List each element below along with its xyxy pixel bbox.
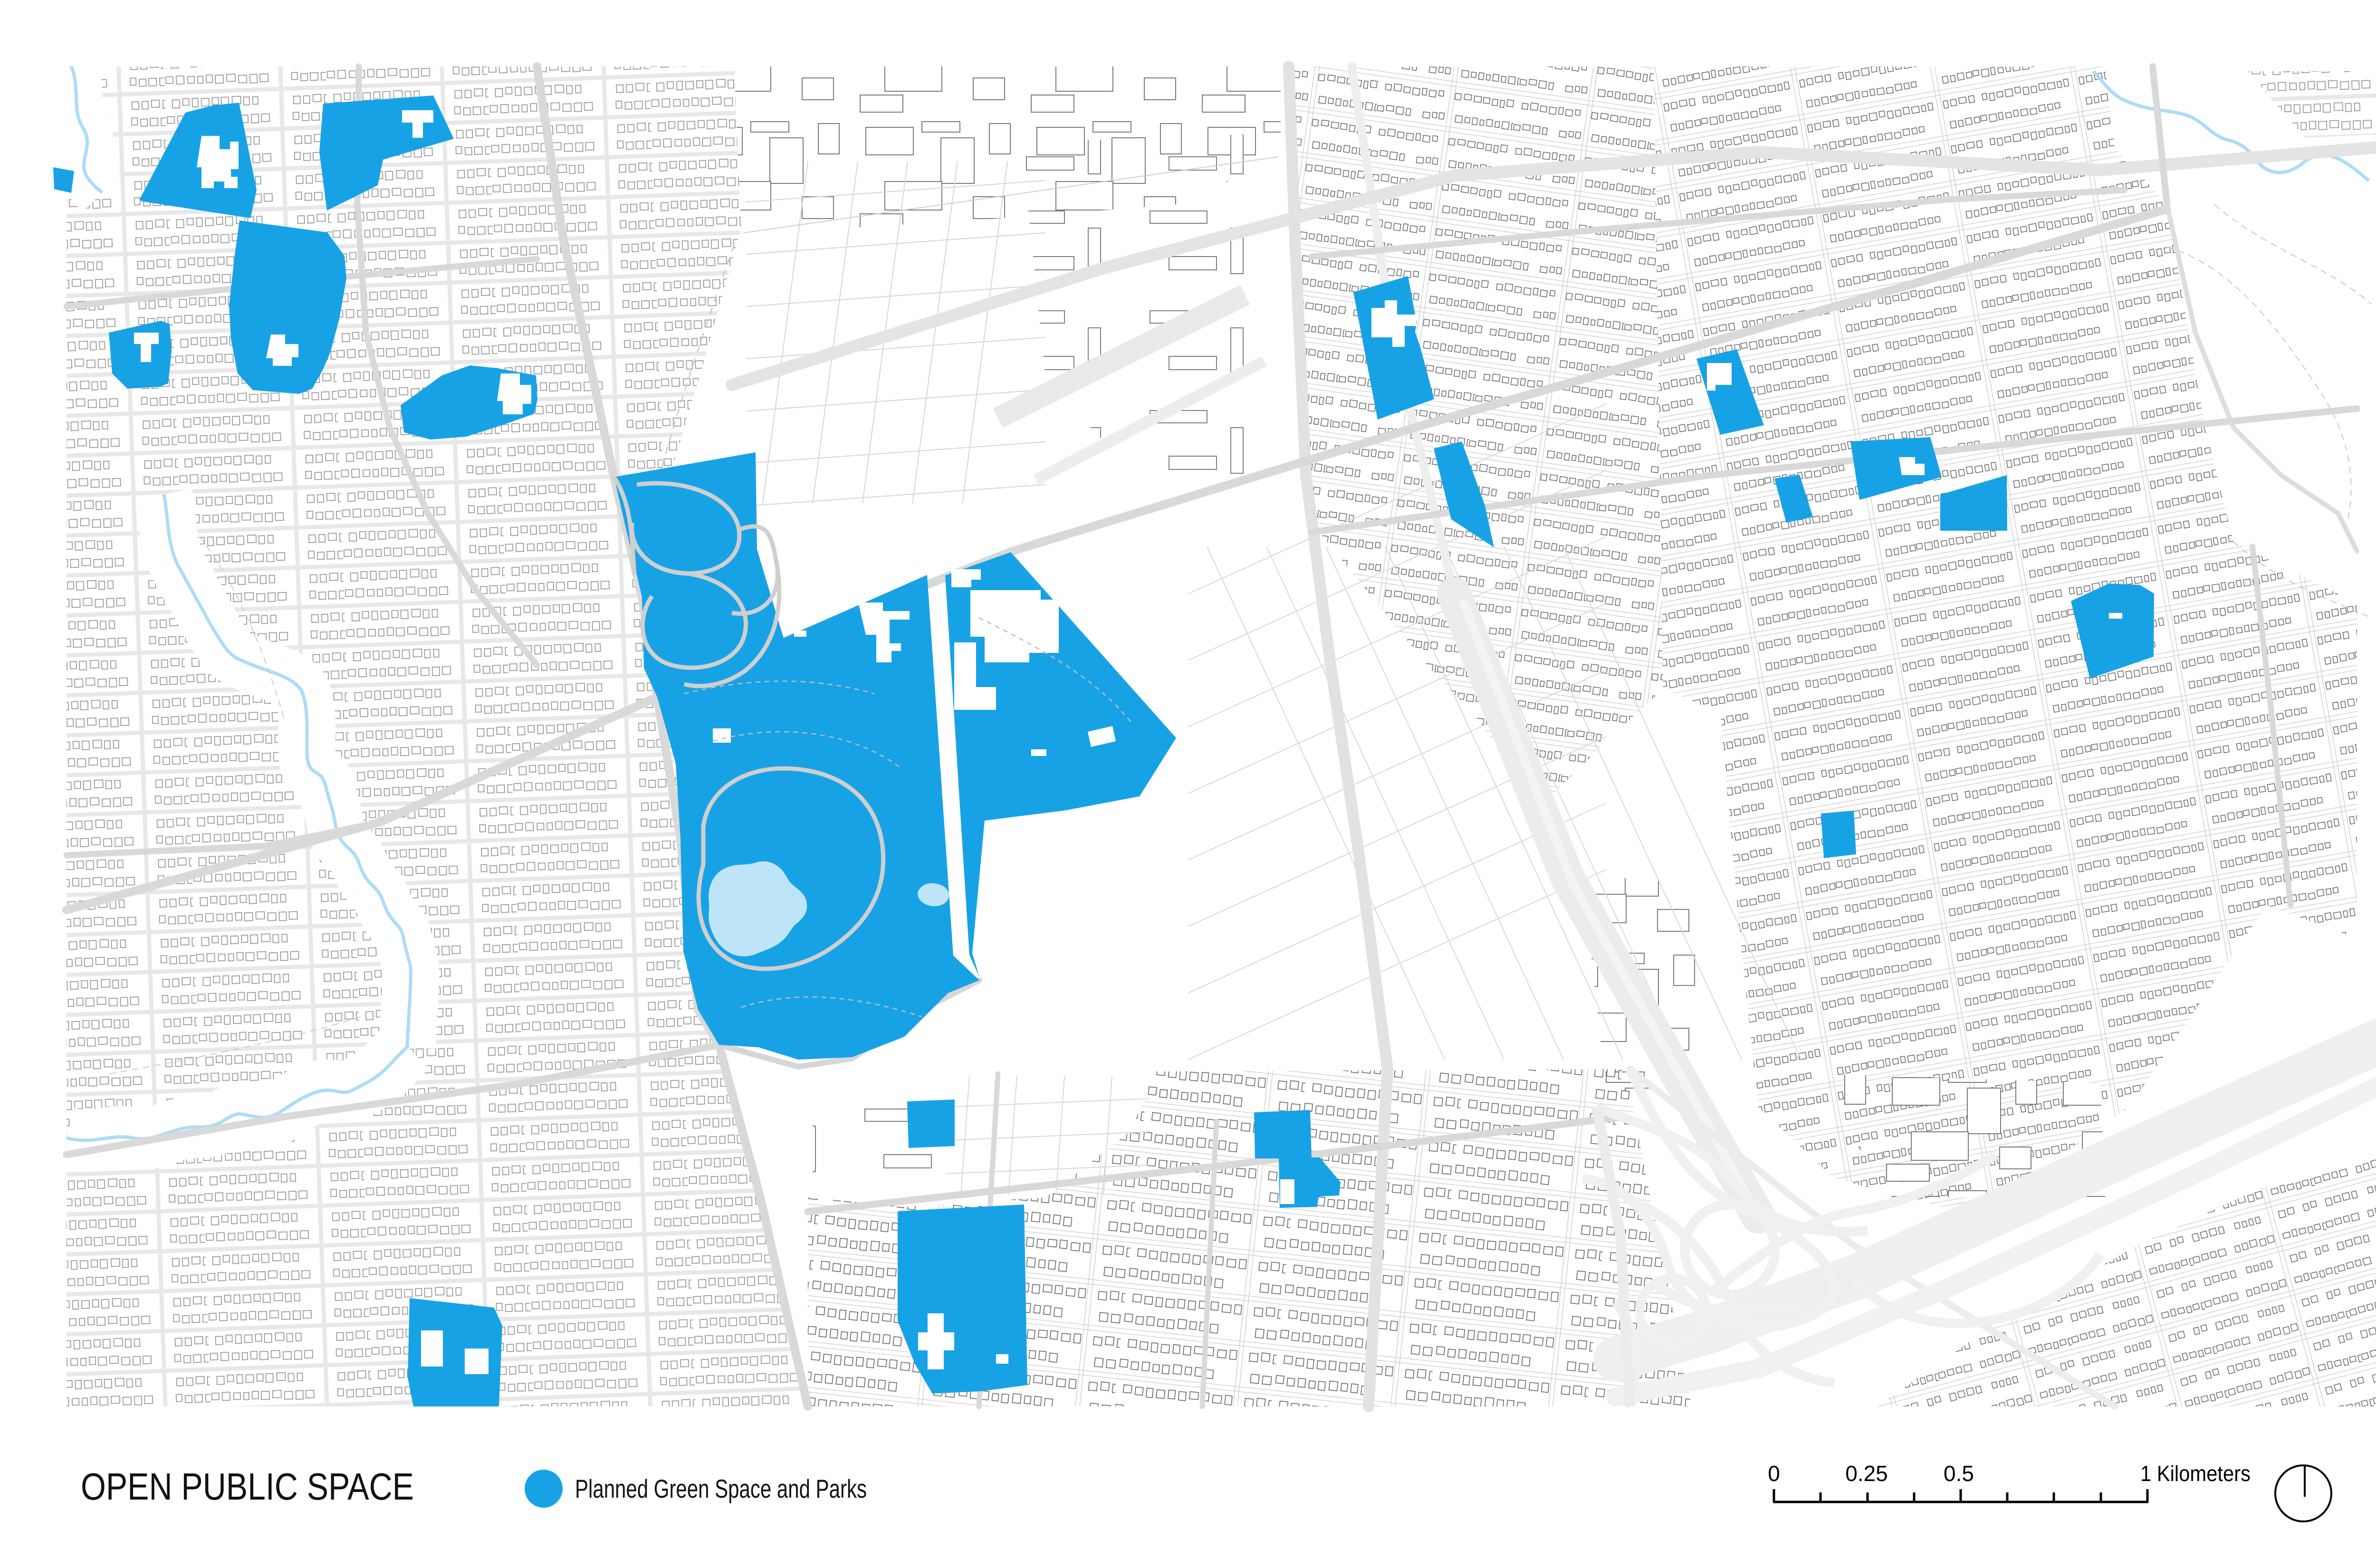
svg-text:Planned Green Space and Parks: Planned Green Space and Parks (575, 1474, 867, 1503)
svg-text:OPEN PUBLIC SPACE: OPEN PUBLIC SPACE (81, 1465, 414, 1508)
svg-text:0.5: 0.5 (1944, 1461, 1974, 1486)
svg-text:0.25: 0.25 (1845, 1461, 1888, 1486)
svg-text:1 Kilometers: 1 Kilometers (2140, 1461, 2251, 1486)
svg-text:0: 0 (1768, 1461, 1780, 1486)
